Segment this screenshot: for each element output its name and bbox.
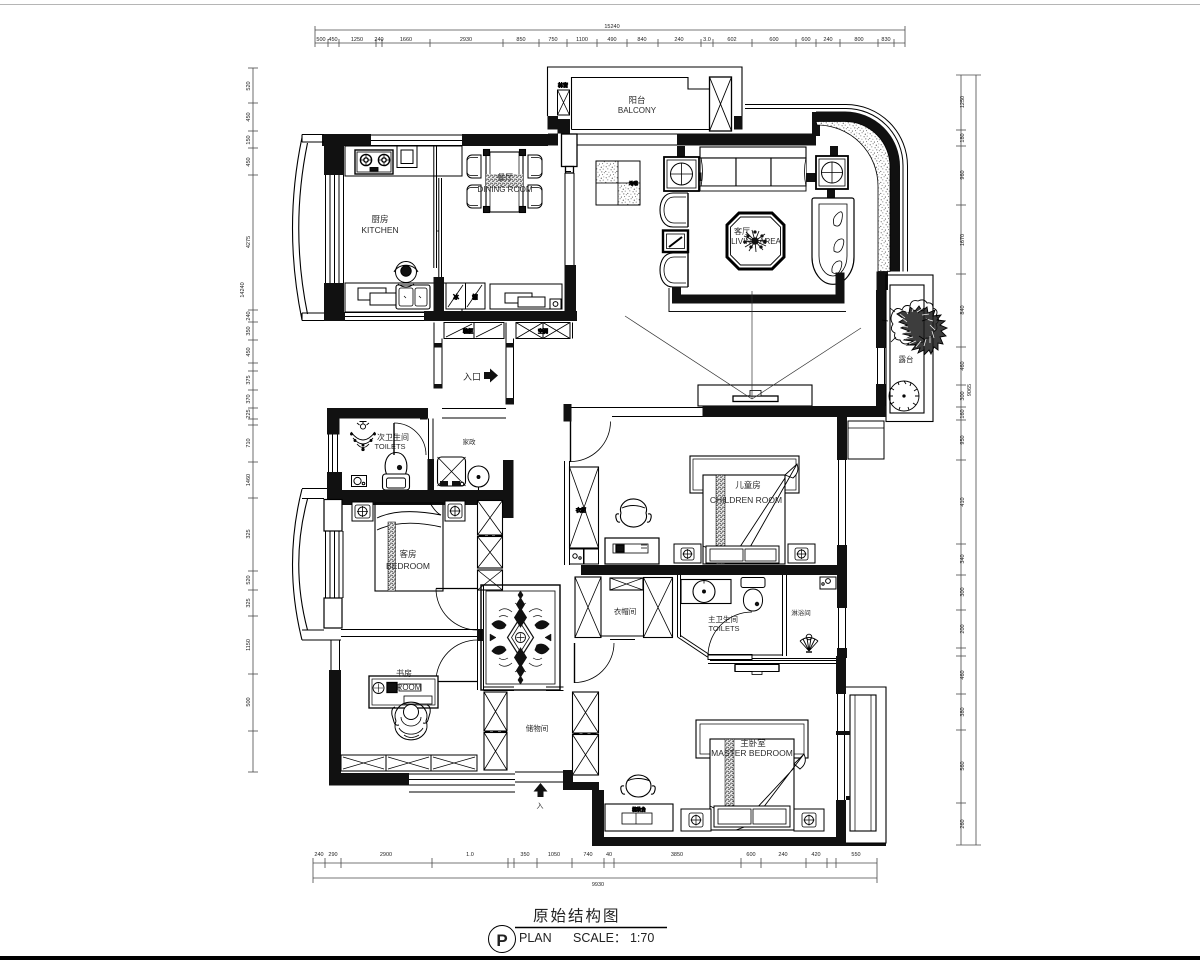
svg-text:240: 240 bbox=[823, 37, 832, 43]
svg-text:240: 240 bbox=[314, 852, 323, 858]
svg-text:600: 600 bbox=[746, 852, 755, 858]
svg-text:客房: 客房 bbox=[399, 549, 416, 559]
svg-text:DINING ROOM: DINING ROOM bbox=[477, 185, 532, 194]
svg-text:340: 340 bbox=[960, 554, 966, 563]
svg-text:TOILETS: TOILETS bbox=[374, 442, 405, 451]
svg-text:SCALE： 1:70: SCALE： 1:70 bbox=[573, 931, 654, 945]
svg-text:储物间: 储物间 bbox=[526, 723, 549, 733]
svg-text:1660: 1660 bbox=[400, 37, 412, 43]
svg-text:840: 840 bbox=[960, 305, 966, 314]
svg-text:PLAN: PLAN bbox=[519, 931, 552, 945]
svg-text:次卫生间: 次卫生间 bbox=[377, 432, 409, 442]
svg-text:450: 450 bbox=[246, 157, 252, 166]
svg-text:BALCONY: BALCONY bbox=[618, 106, 657, 115]
svg-text:书房: 书房 bbox=[396, 668, 412, 678]
svg-text:460: 460 bbox=[960, 361, 966, 370]
svg-text:260: 260 bbox=[960, 819, 966, 828]
svg-text:240: 240 bbox=[374, 37, 383, 43]
svg-text:300: 300 bbox=[960, 587, 966, 596]
svg-text:560: 560 bbox=[960, 761, 966, 770]
svg-text:500: 500 bbox=[246, 697, 252, 706]
svg-text:290: 290 bbox=[328, 852, 337, 858]
svg-text:TOILETS: TOILETS bbox=[708, 624, 739, 633]
svg-text:750: 750 bbox=[548, 37, 557, 43]
svg-text:露台: 露台 bbox=[899, 354, 914, 364]
svg-text:450: 450 bbox=[328, 37, 337, 43]
svg-text:1100: 1100 bbox=[576, 37, 588, 43]
svg-text:3.0: 3.0 bbox=[703, 37, 711, 43]
svg-text:160: 160 bbox=[960, 409, 966, 418]
svg-text:240: 240 bbox=[674, 37, 683, 43]
svg-text:240: 240 bbox=[778, 852, 787, 858]
svg-text:500: 500 bbox=[316, 37, 325, 43]
svg-text:地毯: 地毯 bbox=[629, 180, 638, 186]
svg-text:410: 410 bbox=[960, 497, 966, 506]
svg-text:CHILDREN ROOM: CHILDREN ROOM bbox=[710, 495, 782, 505]
svg-text:225: 225 bbox=[246, 409, 252, 418]
svg-text:1250: 1250 bbox=[960, 96, 966, 108]
svg-text:710: 710 bbox=[246, 438, 252, 447]
svg-text:15240: 15240 bbox=[604, 24, 619, 30]
svg-text:2930: 2930 bbox=[460, 37, 472, 43]
svg-text:衣柜: 衣柜 bbox=[576, 507, 586, 514]
svg-text:9065: 9065 bbox=[967, 384, 973, 396]
svg-text:325: 325 bbox=[246, 598, 252, 607]
svg-text:鞋柜: 鞋柜 bbox=[463, 328, 473, 335]
svg-text:602: 602 bbox=[727, 37, 736, 43]
svg-text:KITCHEN: KITCHEN bbox=[361, 225, 398, 235]
svg-text:850: 850 bbox=[516, 37, 525, 43]
svg-text:梳妆台: 梳妆台 bbox=[632, 806, 646, 813]
svg-text:4275: 4275 bbox=[246, 236, 252, 248]
svg-text:300: 300 bbox=[960, 391, 966, 400]
svg-text:325: 325 bbox=[246, 529, 252, 538]
svg-text:2900: 2900 bbox=[380, 852, 392, 858]
svg-text:箱: 箱 bbox=[472, 293, 478, 301]
svg-text:1050: 1050 bbox=[548, 852, 560, 858]
svg-text:淋浴间: 淋浴间 bbox=[791, 608, 811, 617]
svg-text:490: 490 bbox=[607, 37, 616, 43]
svg-text:P: P bbox=[496, 931, 507, 950]
svg-text:40: 40 bbox=[606, 852, 612, 858]
svg-text:840: 840 bbox=[637, 37, 646, 43]
svg-text:180: 180 bbox=[960, 133, 966, 142]
svg-text:衣帽间: 衣帽间 bbox=[614, 606, 637, 616]
svg-text:林窗: 林窗 bbox=[558, 82, 568, 89]
svg-text:家政: 家政 bbox=[463, 437, 477, 446]
svg-text:9930: 9930 bbox=[592, 882, 604, 888]
svg-text:原始结构图: 原始结构图 bbox=[533, 907, 621, 925]
svg-text:375: 375 bbox=[246, 375, 252, 384]
svg-text:空调: 空调 bbox=[538, 328, 548, 335]
svg-text:520: 520 bbox=[246, 81, 252, 90]
svg-text:1150: 1150 bbox=[246, 639, 252, 651]
svg-text:MASTER BEDROOM: MASTER BEDROOM bbox=[711, 748, 793, 758]
svg-text:740: 740 bbox=[583, 852, 592, 858]
svg-text:BEDROOM: BEDROOM bbox=[386, 561, 430, 571]
svg-text:1670: 1670 bbox=[960, 234, 966, 246]
svg-text:阳台: 阳台 bbox=[628, 95, 645, 105]
svg-text:200: 200 bbox=[960, 624, 966, 633]
svg-text:350: 350 bbox=[520, 852, 529, 858]
svg-text:420: 420 bbox=[811, 852, 820, 858]
svg-text:入口: 入口 bbox=[463, 372, 481, 382]
svg-text:460: 460 bbox=[960, 670, 966, 679]
svg-text:350: 350 bbox=[246, 326, 252, 335]
svg-text:1250: 1250 bbox=[351, 37, 363, 43]
svg-text:餐厅: 餐厅 bbox=[497, 173, 513, 182]
svg-text:960: 960 bbox=[960, 170, 966, 179]
svg-text:380: 380 bbox=[960, 707, 966, 716]
svg-text:370: 370 bbox=[246, 394, 252, 403]
svg-text:儿童房: 儿童房 bbox=[735, 480, 761, 490]
svg-text:主卧室: 主卧室 bbox=[740, 738, 766, 748]
svg-text:14240: 14240 bbox=[240, 282, 246, 297]
svg-text:1460: 1460 bbox=[246, 474, 252, 486]
svg-text:厨房: 厨房 bbox=[371, 214, 388, 224]
svg-text:150: 150 bbox=[246, 135, 252, 144]
svg-text:520: 520 bbox=[246, 575, 252, 584]
svg-text:600: 600 bbox=[801, 37, 810, 43]
svg-text:1.0: 1.0 bbox=[466, 852, 474, 858]
svg-text:600: 600 bbox=[769, 37, 778, 43]
svg-text:800: 800 bbox=[854, 37, 863, 43]
svg-text:830: 830 bbox=[881, 37, 890, 43]
svg-text:240: 240 bbox=[246, 311, 252, 320]
svg-text:ROOM: ROOM bbox=[397, 683, 422, 692]
svg-text:冰: 冰 bbox=[453, 293, 459, 301]
svg-text:450: 450 bbox=[246, 112, 252, 121]
svg-text:950: 950 bbox=[960, 435, 966, 444]
svg-text:入: 入 bbox=[537, 802, 544, 810]
svg-text:550: 550 bbox=[851, 852, 860, 858]
svg-text:450: 450 bbox=[246, 347, 252, 356]
svg-text:3850: 3850 bbox=[671, 852, 683, 858]
